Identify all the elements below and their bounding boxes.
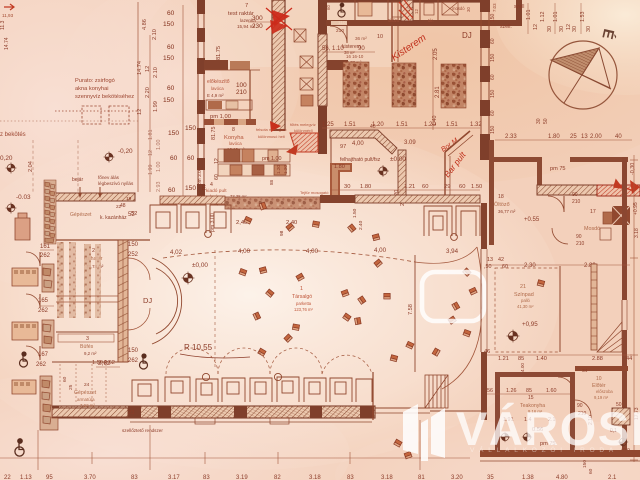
svg-text:1.00: 1.00 xyxy=(156,162,162,173)
svg-text:110: 110 xyxy=(338,20,346,26)
svg-text:Gépészet: Gépészet xyxy=(74,390,97,396)
svg-text:60: 60 xyxy=(459,184,465,190)
svg-text:21: 21 xyxy=(520,284,526,290)
svg-text:1.51: 1.51 xyxy=(396,122,408,128)
svg-text:60: 60 xyxy=(170,155,178,162)
svg-text:150: 150 xyxy=(490,89,496,98)
svg-text:1.81: 1.81 xyxy=(148,130,154,141)
svg-text:81: 81 xyxy=(418,475,425,480)
svg-text:23: 23 xyxy=(128,410,134,416)
svg-text:14.74: 14.74 xyxy=(4,37,10,50)
svg-text:1.80: 1.80 xyxy=(548,134,560,140)
svg-text:60: 60 xyxy=(167,85,175,92)
svg-text:0,20: 0,20 xyxy=(0,155,13,162)
svg-text:2.81: 2.81 xyxy=(435,86,441,98)
svg-text:szellőztető rendszer: szellőztető rendszer xyxy=(122,428,163,433)
svg-text:+0,95: +0,95 xyxy=(522,321,538,328)
svg-text:12: 12 xyxy=(137,109,143,115)
svg-text:tár.: tár. xyxy=(428,18,434,23)
svg-text:4,02: 4,02 xyxy=(170,249,183,256)
svg-text:parketta: parketta xyxy=(296,301,312,306)
svg-text:pm 1.00: pm 1.00 xyxy=(262,156,281,162)
svg-text:Öltöző: Öltöző xyxy=(494,201,510,208)
svg-text:8: 8 xyxy=(232,127,235,133)
svg-text:1.50: 1.50 xyxy=(352,208,358,218)
svg-text:1.20: 1.20 xyxy=(276,165,281,174)
svg-text:1.60: 1.60 xyxy=(546,388,557,394)
svg-text:34: 34 xyxy=(582,368,588,374)
svg-text:10: 10 xyxy=(596,376,602,382)
svg-text:40: 40 xyxy=(615,134,622,140)
svg-text:83: 83 xyxy=(131,475,138,480)
svg-text:1.50: 1.50 xyxy=(471,184,482,190)
svg-text:1.99: 1.99 xyxy=(148,165,154,176)
svg-text:fűtés melegvíz: fűtés melegvíz xyxy=(290,122,316,127)
svg-text:4,00: 4,00 xyxy=(352,141,364,147)
svg-text:1.80: 1.80 xyxy=(360,184,371,190)
svg-text:3.70: 3.70 xyxy=(84,475,96,480)
svg-text:3.19: 3.19 xyxy=(236,475,248,480)
svg-text:felsota mosogató: felsota mosogató xyxy=(256,127,287,132)
svg-text:1.51: 1.51 xyxy=(446,122,458,128)
svg-text:4.00: 4.00 xyxy=(520,363,525,372)
svg-text:R 10,55: R 10,55 xyxy=(184,343,213,352)
svg-text:150: 150 xyxy=(490,13,496,22)
svg-text:41,30 m²: 41,30 m² xyxy=(517,304,534,309)
svg-text:4: 4 xyxy=(210,182,213,188)
svg-text:161: 161 xyxy=(40,244,51,250)
svg-text:előkészítő: előkészítő xyxy=(207,79,230,85)
svg-text:12: 12 xyxy=(145,66,151,72)
svg-text:Purato: zsirfogó: Purato: zsirfogó xyxy=(75,78,115,84)
svg-text:252: 252 xyxy=(128,252,139,258)
svg-text:2.10: 2.10 xyxy=(152,29,158,40)
svg-text:88: 88 xyxy=(269,179,274,185)
svg-text:24: 24 xyxy=(84,382,90,388)
svg-text:85: 85 xyxy=(518,356,524,362)
svg-text:15: 15 xyxy=(528,395,534,401)
svg-text:1.38: 1.38 xyxy=(522,475,534,480)
svg-text:1.01: 1.01 xyxy=(553,12,559,23)
svg-text:3.18: 3.18 xyxy=(309,475,321,480)
svg-text:60: 60 xyxy=(490,38,496,44)
svg-text:50: 50 xyxy=(543,118,549,124)
svg-text:1.00: 1.00 xyxy=(156,140,162,151)
svg-text:3.20: 3.20 xyxy=(451,475,463,480)
svg-text:262: 262 xyxy=(38,308,49,314)
svg-text:56: 56 xyxy=(487,388,493,394)
svg-text:1.01: 1.01 xyxy=(526,10,532,21)
svg-text:2.40: 2.40 xyxy=(358,220,364,230)
svg-text:56, 1.10: 56, 1.10 xyxy=(322,46,344,52)
svg-text:165: 165 xyxy=(38,298,49,304)
svg-text:83: 83 xyxy=(347,475,354,480)
svg-text:14.74: 14.74 xyxy=(137,61,143,75)
svg-text:9,2 m²: 9,2 m² xyxy=(84,351,97,356)
svg-text:lavóca: lavóca xyxy=(229,141,242,146)
svg-text:2.1: 2.1 xyxy=(608,475,617,480)
svg-text:210: 210 xyxy=(572,199,581,205)
svg-text:30: 30 xyxy=(586,26,592,32)
svg-text:262: 262 xyxy=(36,362,47,368)
svg-text:Társalgó: Társalgó xyxy=(292,294,312,300)
svg-text:300: 300 xyxy=(252,15,263,22)
svg-text:szennyvíz bekötéséhez: szennyvíz bekötéséhez xyxy=(75,94,134,100)
svg-text:2: 2 xyxy=(92,248,95,254)
svg-text:60: 60 xyxy=(167,44,175,51)
svg-text:,50: ,50 xyxy=(484,264,492,270)
svg-text:210: 210 xyxy=(576,241,585,247)
svg-text:83: 83 xyxy=(203,475,210,480)
svg-text:150: 150 xyxy=(128,242,139,248)
svg-text:±0.00: ±0.00 xyxy=(390,156,406,163)
svg-text:VÁLLALKOZÓI IRODA: VÁLLALKOZÓI IRODA xyxy=(470,445,618,454)
svg-text:3.17: 3.17 xyxy=(168,475,180,480)
svg-text:25: 25 xyxy=(570,134,577,140)
svg-text:210: 210 xyxy=(236,89,247,96)
svg-text:7,92 m²: 7,92 m² xyxy=(80,403,95,408)
svg-text:-0,20: -0,20 xyxy=(118,148,133,155)
svg-text:150: 150 xyxy=(168,130,179,137)
svg-text:bejár: bejár xyxy=(72,177,83,183)
svg-text:főnev álás: főnev álás xyxy=(98,175,120,180)
svg-text:különmérő: különmérő xyxy=(294,128,313,133)
svg-text:150: 150 xyxy=(185,185,196,192)
svg-text:150: 150 xyxy=(490,53,496,62)
svg-text:10: 10 xyxy=(377,34,383,40)
svg-text:1.13: 1.13 xyxy=(20,475,32,480)
svg-text:13: 13 xyxy=(487,257,493,263)
svg-text:60: 60 xyxy=(187,155,195,162)
svg-text:légbeszívó nyílás: légbeszívó nyílás xyxy=(98,181,134,186)
svg-text:mosdó: mosdó xyxy=(452,6,465,11)
svg-text:150: 150 xyxy=(582,460,588,468)
svg-text:12: 12 xyxy=(533,24,539,30)
svg-text:1.80: 1.80 xyxy=(334,164,345,170)
svg-text:-0,30: -0,30 xyxy=(630,163,636,175)
svg-text:DJ: DJ xyxy=(143,296,152,305)
svg-text:szell: szell xyxy=(514,4,524,10)
svg-text:262: 262 xyxy=(128,358,139,364)
svg-text:4,00: 4,00 xyxy=(374,247,387,254)
svg-text:60: 60 xyxy=(326,5,331,10)
svg-text:különmosó heti: különmosó heti xyxy=(258,134,285,139)
svg-text:lavóca: lavóca xyxy=(211,86,224,91)
svg-text:25: 25 xyxy=(68,384,74,390)
svg-text:2.93: 2.93 xyxy=(156,182,162,193)
svg-text:18: 18 xyxy=(498,194,504,200)
svg-text:7.58: 7.58 xyxy=(408,304,414,315)
svg-text:17: 17 xyxy=(590,209,596,215)
svg-text:7.03: 7.03 xyxy=(492,3,497,12)
svg-text:pm 3.00: pm 3.00 xyxy=(210,213,216,232)
svg-text:felhajtható pult/fsz: felhajtható pult/fsz xyxy=(340,157,381,163)
svg-text:+0.55: +0.55 xyxy=(524,217,540,223)
svg-text:1.26: 1.26 xyxy=(506,388,517,394)
svg-text:60: 60 xyxy=(62,376,68,382)
svg-text:Mosdó: Mosdó xyxy=(584,226,600,232)
svg-text:2,62: 2,62 xyxy=(98,360,111,367)
svg-text:2.20: 2.20 xyxy=(145,87,151,98)
svg-text:30: 30 xyxy=(536,118,542,124)
svg-text:öltőző: öltőző xyxy=(388,18,400,23)
svg-text:11.3: 11.3 xyxy=(0,20,6,30)
svg-text:pm 3.00: pm 3.00 xyxy=(197,167,203,185)
svg-text:16 16-10: 16 16-10 xyxy=(346,54,364,59)
svg-text:36 m²: 36 m² xyxy=(355,36,367,41)
svg-text:19: 19 xyxy=(126,196,132,202)
svg-text:palló: palló xyxy=(521,298,531,303)
svg-text:3.18: 3.18 xyxy=(381,475,393,480)
svg-text:60: 60 xyxy=(502,264,508,270)
svg-text:1.99: 1.99 xyxy=(153,101,159,112)
svg-text:E 4,9 m²: E 4,9 m² xyxy=(207,93,224,98)
svg-text:150: 150 xyxy=(163,55,174,62)
svg-text:11,93: 11,93 xyxy=(2,13,14,18)
svg-text:1.20: 1.20 xyxy=(424,122,436,128)
svg-text:30: 30 xyxy=(344,184,350,190)
svg-text:9,19 m²: 9,19 m² xyxy=(594,395,609,400)
svg-text:30: 30 xyxy=(572,26,578,32)
svg-text:52: 52 xyxy=(128,212,135,218)
svg-text:3.18: 3.18 xyxy=(634,228,640,238)
svg-text:150: 150 xyxy=(163,97,174,104)
svg-text:4.86: 4.86 xyxy=(142,19,148,30)
svg-text:97: 97 xyxy=(340,144,346,150)
svg-text:30: 30 xyxy=(466,7,471,12)
svg-text:3.09: 3.09 xyxy=(404,140,416,146)
svg-text:60: 60 xyxy=(490,110,496,116)
svg-text:60: 60 xyxy=(167,10,175,17)
svg-text:Gépészet: Gépészet xyxy=(70,212,92,218)
svg-text:81.75: 81.75 xyxy=(211,127,217,141)
svg-text:2.33: 2.33 xyxy=(505,134,517,140)
svg-text:36,77 m²: 36,77 m² xyxy=(498,209,516,214)
svg-text:22: 22 xyxy=(116,204,122,209)
svg-text:1.20: 1.20 xyxy=(283,165,288,174)
svg-text:98: 98 xyxy=(279,230,285,236)
svg-text:150: 150 xyxy=(490,125,496,134)
svg-text:1.21: 1.21 xyxy=(498,356,509,362)
svg-text:150: 150 xyxy=(163,21,174,28)
svg-text:85: 85 xyxy=(526,388,532,394)
svg-text:95: 95 xyxy=(46,475,53,480)
svg-text:3: 3 xyxy=(86,336,89,342)
svg-text:60: 60 xyxy=(490,74,496,80)
svg-text:150: 150 xyxy=(128,348,139,354)
svg-text:armatúra: armatúra xyxy=(77,397,95,402)
svg-text:test raktár: test raktár xyxy=(228,11,254,17)
svg-text:1.25: 1.25 xyxy=(322,122,334,128)
svg-text:szell.: szell. xyxy=(500,24,512,30)
svg-text:90: 90 xyxy=(576,234,582,240)
svg-text:30: 30 xyxy=(547,26,553,32)
svg-text:42: 42 xyxy=(498,257,504,263)
svg-text:1.32: 1.32 xyxy=(470,122,482,128)
svg-text:-0.03: -0.03 xyxy=(16,194,31,201)
svg-text:150: 150 xyxy=(185,125,196,132)
svg-text:82: 82 xyxy=(274,475,281,480)
svg-text:1.20: 1.20 xyxy=(372,122,384,128)
svg-text:1.01: 1.01 xyxy=(406,3,411,12)
svg-text:167: 167 xyxy=(38,352,49,358)
svg-text:1.40: 1.40 xyxy=(536,356,547,362)
svg-text:Tejfür mosogató: Tejfür mosogató xyxy=(300,190,329,195)
svg-text:1.21: 1.21 xyxy=(404,184,415,190)
svg-text:1: 1 xyxy=(300,286,303,292)
svg-text:60: 60 xyxy=(588,468,594,474)
svg-text:k. kazánház: k. kazánház xyxy=(100,215,127,221)
svg-text:230: 230 xyxy=(252,23,263,30)
svg-text:29: 29 xyxy=(444,184,450,190)
svg-text:90: 90 xyxy=(358,46,365,52)
svg-text:4,00: 4,00 xyxy=(306,248,319,255)
svg-text:22: 22 xyxy=(4,475,11,480)
svg-text:akna konyhai: akna konyhai xyxy=(75,86,109,92)
svg-text:2.00: 2.00 xyxy=(590,134,602,140)
svg-text:1.12: 1.12 xyxy=(540,12,546,23)
svg-text:2.88: 2.88 xyxy=(592,356,603,362)
svg-text:1.51: 1.51 xyxy=(344,122,356,128)
svg-text:12: 12 xyxy=(148,150,154,156)
svg-text:12: 12 xyxy=(414,9,419,14)
svg-text:Büfés: Büfés xyxy=(80,344,94,350)
svg-text:262: 262 xyxy=(40,253,51,259)
svg-text:4.80: 4.80 xyxy=(556,475,568,480)
svg-text:81.75: 81.75 xyxy=(216,46,222,60)
svg-text:7: 7 xyxy=(245,3,248,9)
svg-text:13: 13 xyxy=(581,134,588,140)
svg-text:90: 90 xyxy=(572,192,578,198)
svg-text:±0,00: ±0,00 xyxy=(192,262,208,269)
svg-text:60: 60 xyxy=(422,184,428,190)
svg-text:35: 35 xyxy=(487,475,494,480)
svg-text:123,76 m²: 123,76 m² xyxy=(294,307,313,312)
svg-text:előszoba: előszoba xyxy=(596,389,613,394)
svg-text:30: 30 xyxy=(559,26,565,32)
svg-text:3,94: 3,94 xyxy=(446,248,459,255)
svg-text:4,00: 4,00 xyxy=(238,248,251,255)
svg-text:DJ: DJ xyxy=(462,31,472,40)
svg-text:44: 44 xyxy=(626,356,632,362)
svg-text:60: 60 xyxy=(168,187,176,194)
svg-text:pm 75: pm 75 xyxy=(550,166,566,172)
svg-text:2.10: 2.10 xyxy=(153,67,159,78)
svg-text:z bekötés: z bekötés xyxy=(0,132,26,138)
svg-text:2.05: 2.05 xyxy=(433,48,439,60)
svg-text:100: 100 xyxy=(236,82,247,89)
